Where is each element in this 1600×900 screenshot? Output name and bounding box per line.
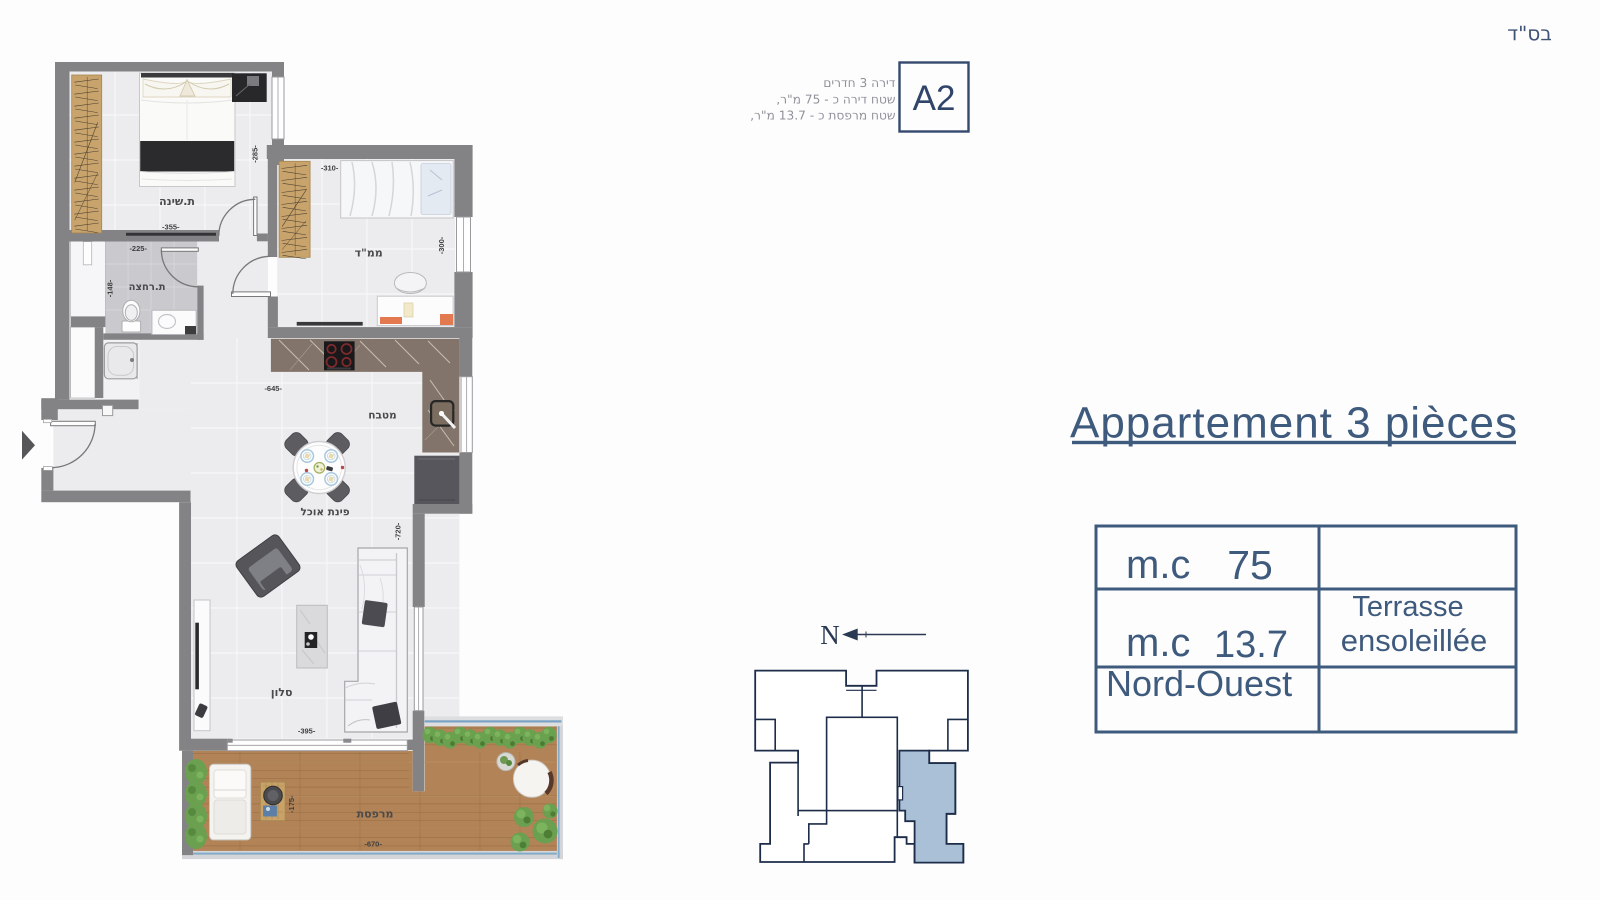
svg-text:N: N bbox=[820, 620, 840, 650]
svg-text:Terrasse: Terrasse bbox=[1352, 591, 1463, 623]
svg-text:-300-: -300- bbox=[437, 236, 446, 254]
svg-text:-670-: -670- bbox=[364, 840, 382, 849]
svg-text:-355-: -355- bbox=[162, 223, 180, 232]
svg-text:-175-: -175- bbox=[287, 795, 296, 813]
svg-text:Appartement 3 pièces: Appartement 3 pièces bbox=[1070, 399, 1518, 448]
svg-text:-310-: -310- bbox=[321, 163, 339, 172]
svg-text:13.7: 13.7 bbox=[1214, 624, 1288, 666]
svg-text:Nord-Ouest: Nord-Ouest bbox=[1106, 663, 1292, 704]
svg-text:-720-: -720- bbox=[394, 522, 403, 540]
svg-text:75: 75 bbox=[1227, 542, 1273, 588]
svg-text:-148-: -148- bbox=[105, 279, 114, 297]
svg-text:m.c: m.c bbox=[1126, 621, 1190, 665]
svg-text:-225-: -225- bbox=[129, 244, 147, 253]
svg-text:ensoleillée: ensoleillée bbox=[1341, 623, 1488, 658]
svg-text:A2: A2 bbox=[913, 79, 956, 118]
svg-text:-395-: -395- bbox=[298, 726, 316, 735]
svg-text:-645-: -645- bbox=[264, 384, 282, 393]
svg-text:-285-: -285- bbox=[251, 145, 260, 163]
svg-text:m.c: m.c bbox=[1126, 543, 1190, 587]
